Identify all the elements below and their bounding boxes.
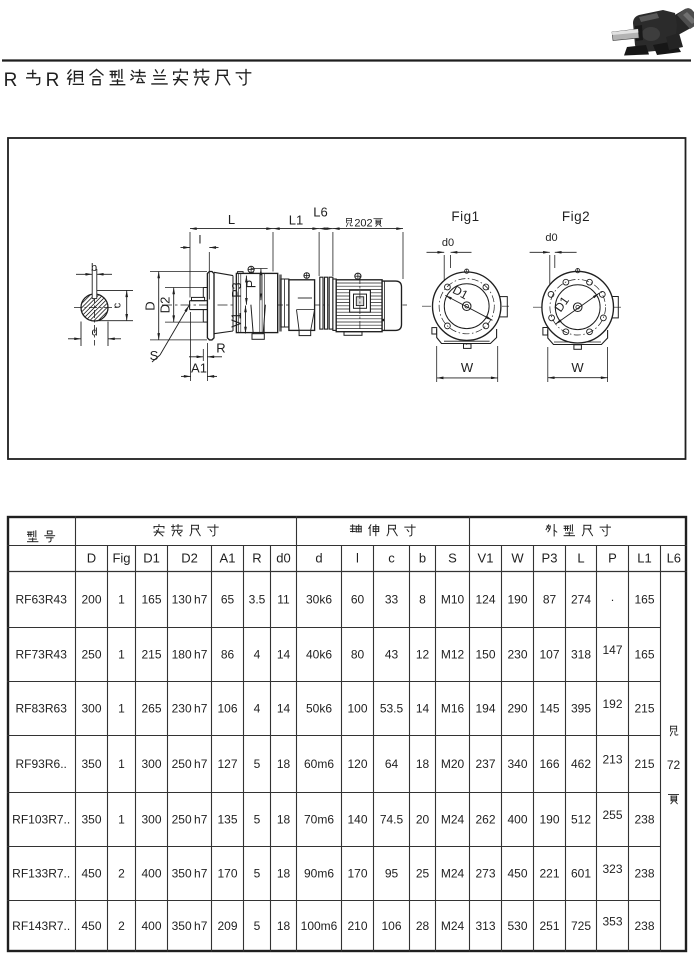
svg-text:64: 64 [385, 757, 399, 771]
svg-text:70m6: 70m6 [304, 813, 334, 827]
svg-text:d: d [315, 551, 322, 566]
svg-text:180 h7: 180 h7 [172, 648, 208, 662]
svg-text:215: 215 [634, 702, 654, 716]
svg-text:S: S [150, 348, 159, 363]
svg-text:124: 124 [475, 593, 495, 607]
svg-text:33: 33 [385, 593, 399, 607]
svg-text:A1: A1 [220, 551, 236, 566]
svg-text:65: 65 [221, 593, 235, 607]
svg-text:M24: M24 [441, 867, 465, 881]
svg-text:R: R [216, 341, 225, 356]
svg-text:W: W [461, 360, 474, 375]
svg-text:L6: L6 [313, 205, 327, 220]
svg-text:60: 60 [351, 593, 365, 607]
svg-text:l: l [356, 551, 359, 566]
svg-text:170: 170 [347, 867, 367, 881]
svg-text:18: 18 [277, 757, 291, 771]
svg-text:4: 4 [254, 648, 261, 662]
svg-text:215: 215 [141, 648, 161, 662]
svg-text:135: 135 [217, 813, 237, 827]
svg-text:213: 213 [602, 753, 622, 767]
svg-text:18: 18 [277, 813, 291, 827]
svg-text:18: 18 [277, 867, 291, 881]
svg-text:238: 238 [634, 867, 654, 881]
svg-text:b: b [419, 551, 426, 566]
svg-text:RF93R6..: RF93R6.. [16, 757, 67, 771]
svg-text:265: 265 [141, 702, 161, 716]
svg-text:D: D [87, 551, 96, 566]
svg-text:5: 5 [254, 919, 261, 933]
svg-text:200: 200 [81, 593, 101, 607]
svg-text:S: S [448, 551, 457, 566]
svg-text:80: 80 [351, 648, 365, 662]
svg-text:RF133R7..: RF133R7.. [12, 867, 70, 881]
svg-text:255: 255 [602, 808, 622, 822]
svg-text:M16: M16 [441, 702, 465, 716]
svg-text:74.5: 74.5 [380, 813, 404, 827]
svg-text:273: 273 [475, 867, 495, 881]
svg-text:D2: D2 [158, 297, 173, 314]
svg-text:2: 2 [118, 919, 125, 933]
svg-text:251: 251 [539, 919, 559, 933]
svg-text:350 h7: 350 h7 [172, 867, 208, 881]
svg-text:400: 400 [141, 919, 161, 933]
svg-text:274: 274 [571, 593, 591, 607]
svg-text:50k6: 50k6 [306, 702, 332, 716]
svg-text:D: D [143, 301, 158, 310]
svg-text:W: W [511, 551, 524, 566]
svg-text:25: 25 [416, 867, 430, 881]
svg-text:462: 462 [571, 757, 591, 771]
svg-text:2: 2 [118, 867, 125, 881]
svg-text:L1: L1 [289, 213, 303, 228]
svg-text:350: 350 [81, 813, 101, 827]
svg-text:W: W [571, 360, 584, 375]
svg-text:450: 450 [81, 919, 101, 933]
svg-text:1: 1 [118, 757, 125, 771]
svg-text:14: 14 [277, 648, 291, 662]
svg-text:230 h7: 230 h7 [172, 702, 208, 716]
svg-text:P3: P3 [230, 282, 244, 297]
svg-text:M24: M24 [441, 813, 465, 827]
svg-text:d0: d0 [276, 551, 290, 566]
svg-text:601: 601 [571, 867, 591, 881]
svg-text:145: 145 [539, 702, 559, 716]
svg-text:170: 170 [217, 867, 237, 881]
svg-text:d0: d0 [545, 232, 557, 244]
svg-text:30k6: 30k6 [306, 593, 332, 607]
svg-text:221: 221 [539, 867, 559, 881]
svg-text:R: R [46, 70, 60, 91]
svg-text:P3: P3 [542, 551, 558, 566]
svg-text:·: · [611, 593, 615, 607]
svg-text:A1: A1 [191, 361, 207, 376]
svg-text:150: 150 [475, 648, 495, 662]
svg-text:120: 120 [347, 757, 367, 771]
svg-text:11: 11 [277, 593, 290, 607]
svg-text:300: 300 [81, 702, 101, 716]
svg-text:5: 5 [254, 867, 261, 881]
svg-text:RF103R7..: RF103R7.. [12, 813, 70, 827]
svg-text:86: 86 [221, 648, 235, 662]
svg-text:12: 12 [416, 648, 430, 662]
svg-text:262: 262 [475, 813, 495, 827]
svg-text:14: 14 [277, 702, 291, 716]
svg-text:450: 450 [81, 867, 101, 881]
svg-text:140: 140 [347, 813, 367, 827]
svg-text:Fig: Fig [112, 551, 130, 566]
svg-text:215: 215 [634, 757, 654, 771]
svg-text:RF143R7..: RF143R7.. [12, 919, 70, 933]
svg-text:L: L [228, 212, 235, 227]
svg-text:238: 238 [634, 919, 654, 933]
svg-text:c: c [112, 302, 124, 308]
svg-text:192: 192 [602, 697, 622, 711]
svg-text:106: 106 [381, 919, 401, 933]
svg-text:209: 209 [217, 919, 237, 933]
svg-text:RF73R43: RF73R43 [16, 648, 68, 662]
svg-text:b: b [91, 262, 97, 274]
svg-text:18: 18 [277, 919, 291, 933]
svg-text:165: 165 [141, 593, 161, 607]
svg-text:100: 100 [347, 702, 367, 716]
svg-text:V1: V1 [478, 551, 494, 566]
svg-text:20: 20 [416, 813, 430, 827]
svg-text:L1: L1 [637, 551, 651, 566]
svg-text:l: l [199, 233, 202, 247]
svg-text:323: 323 [602, 862, 622, 876]
svg-text:353: 353 [602, 915, 622, 929]
svg-text:V1: V1 [229, 312, 243, 327]
svg-text:3.5: 3.5 [249, 593, 266, 607]
svg-text:166: 166 [539, 757, 559, 771]
svg-text:300: 300 [141, 757, 161, 771]
svg-text:D1: D1 [143, 551, 160, 566]
svg-text:40k6: 40k6 [306, 648, 332, 662]
svg-text:530: 530 [507, 919, 527, 933]
svg-text:95: 95 [385, 867, 399, 881]
svg-text:350: 350 [81, 757, 101, 771]
svg-text:M12: M12 [441, 648, 465, 662]
svg-text:147: 147 [602, 643, 622, 657]
svg-text:237: 237 [475, 757, 495, 771]
svg-text:165: 165 [634, 648, 654, 662]
svg-text:210: 210 [347, 919, 367, 933]
svg-text:400: 400 [141, 867, 161, 881]
svg-text:M10: M10 [441, 593, 465, 607]
svg-text:106: 106 [217, 702, 237, 716]
svg-text:318: 318 [571, 648, 591, 662]
svg-text:194: 194 [475, 702, 495, 716]
svg-text:400: 400 [507, 813, 527, 827]
svg-text:250 h7: 250 h7 [172, 813, 208, 827]
svg-text:M20: M20 [441, 757, 465, 771]
svg-text:5: 5 [254, 757, 261, 771]
svg-text:165: 165 [634, 593, 654, 607]
svg-text:Fig1: Fig1 [451, 209, 479, 224]
svg-text:R: R [4, 70, 18, 91]
svg-text:53.5: 53.5 [380, 702, 404, 716]
svg-text:190: 190 [539, 813, 559, 827]
svg-text:D2: D2 [181, 551, 198, 566]
svg-text:350 h7: 350 h7 [172, 919, 208, 933]
svg-text:L6: L6 [667, 551, 681, 566]
svg-text:4: 4 [254, 702, 261, 716]
svg-text:230: 230 [507, 648, 527, 662]
svg-text:512: 512 [571, 813, 591, 827]
svg-text:RF63R43: RF63R43 [16, 593, 68, 607]
svg-text:313: 313 [475, 919, 495, 933]
svg-text:72: 72 [667, 758, 681, 772]
svg-text:L: L [577, 551, 584, 566]
svg-text:1: 1 [118, 702, 125, 716]
svg-text:14: 14 [416, 702, 430, 716]
svg-text:395: 395 [571, 702, 591, 716]
svg-text:8: 8 [419, 593, 426, 607]
svg-text:107: 107 [539, 648, 559, 662]
svg-text:RF83R63: RF83R63 [16, 702, 68, 716]
svg-text:1: 1 [118, 813, 125, 827]
svg-text:60m6: 60m6 [304, 757, 334, 771]
svg-text:340: 340 [507, 757, 527, 771]
svg-text:P: P [608, 551, 617, 566]
svg-text:127: 127 [217, 757, 237, 771]
svg-text:d0: d0 [442, 237, 454, 249]
svg-text:725: 725 [571, 919, 591, 933]
svg-text:250: 250 [81, 648, 101, 662]
svg-text:Fig2: Fig2 [562, 209, 590, 224]
svg-text:18: 18 [416, 757, 430, 771]
svg-text:202: 202 [354, 217, 372, 229]
svg-text:43: 43 [385, 648, 399, 662]
svg-text:90m6: 90m6 [304, 867, 334, 881]
svg-text:28: 28 [416, 919, 430, 933]
svg-text:c: c [388, 551, 395, 566]
svg-text:R: R [252, 551, 261, 566]
svg-text:5: 5 [254, 813, 261, 827]
svg-text:290: 290 [507, 702, 527, 716]
svg-text:1: 1 [118, 593, 125, 607]
svg-text:87: 87 [543, 593, 557, 607]
svg-text:300: 300 [141, 813, 161, 827]
svg-text:100m6: 100m6 [301, 919, 338, 933]
svg-text:190: 190 [507, 593, 527, 607]
svg-text:M24: M24 [441, 919, 465, 933]
svg-text:130 h7: 130 h7 [172, 593, 208, 607]
svg-text:1: 1 [118, 648, 125, 662]
svg-text:450: 450 [507, 867, 527, 881]
svg-text:P: P [245, 280, 259, 288]
svg-text:d: d [91, 327, 97, 339]
svg-text:238: 238 [634, 813, 654, 827]
svg-text:250 h7: 250 h7 [172, 757, 208, 771]
